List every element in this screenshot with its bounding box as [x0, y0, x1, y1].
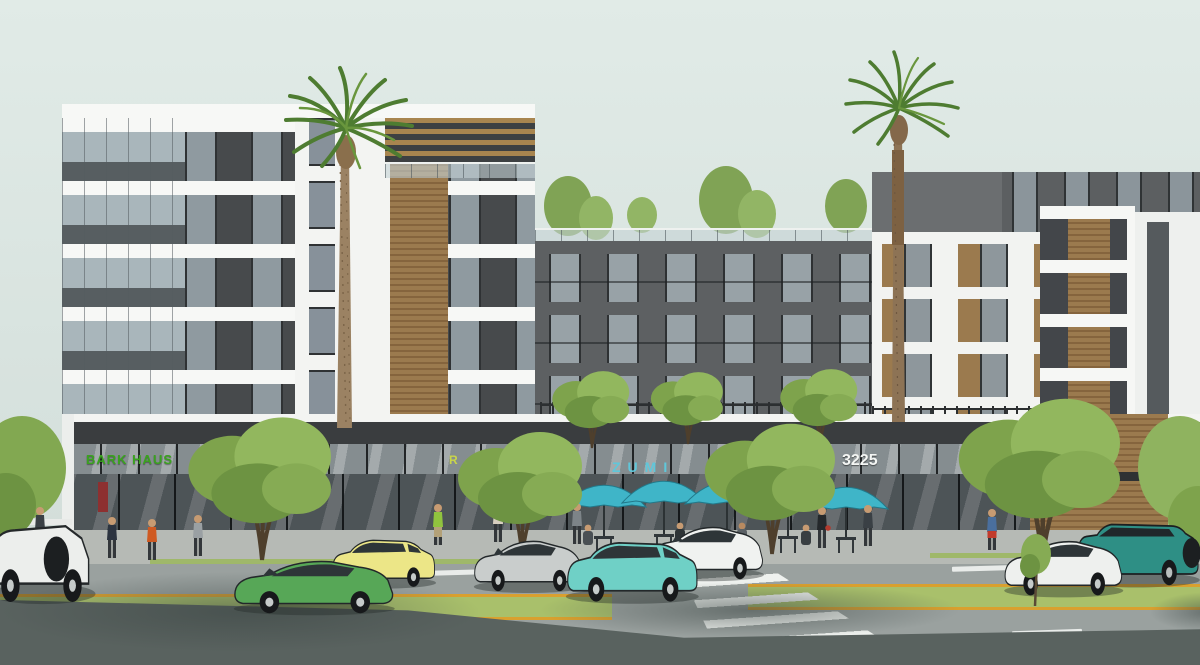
corner-canopy	[1030, 472, 1168, 481]
right-tower-side-wall	[1135, 212, 1200, 432]
side-street-wall	[1168, 426, 1200, 535]
center-block-wall	[535, 241, 872, 425]
purple-sign	[288, 460, 316, 470]
pier-window-column	[309, 118, 335, 425]
building-right-tower	[872, 172, 1200, 432]
corner-wall-sign: PARKING ENTER	[1036, 466, 1106, 473]
architectural-rendering: BARK HAUS R ZUMI 3225 PARKING ENTER	[0, 0, 1200, 665]
address-sign-3225: 3225	[842, 452, 878, 470]
retail-sign-bark-haus: BARK HAUS	[86, 452, 173, 467]
balcony-side-fin	[1127, 206, 1135, 432]
left-tower-white-pier	[295, 118, 390, 425]
building-left-tower	[62, 104, 535, 425]
right-tower-balcony-stack	[1040, 206, 1135, 432]
roof-louver-sunshade	[385, 118, 535, 162]
right-tower-penthouse	[872, 172, 1002, 238]
retail-sign-partial: R	[449, 453, 458, 467]
building-center-block	[535, 228, 872, 425]
top-floor-glass-rail	[385, 162, 535, 178]
podium-left-pier	[62, 414, 74, 535]
retail-sign-zumi: ZUMI	[612, 459, 674, 475]
store-interior-banner	[98, 482, 108, 512]
sidewalk	[0, 530, 1200, 568]
balcony-slabs	[1040, 206, 1135, 432]
side-window-column	[1147, 222, 1169, 432]
left-tower-parapet	[62, 104, 535, 119]
tree-shadow	[540, 582, 960, 638]
right-road-shadow	[1150, 592, 1200, 632]
left-tower-balconies	[62, 118, 185, 425]
corner-wood-wall	[1030, 414, 1168, 535]
left-road-shadow	[0, 572, 480, 652]
curb-grass-strip-right	[930, 553, 1200, 558]
